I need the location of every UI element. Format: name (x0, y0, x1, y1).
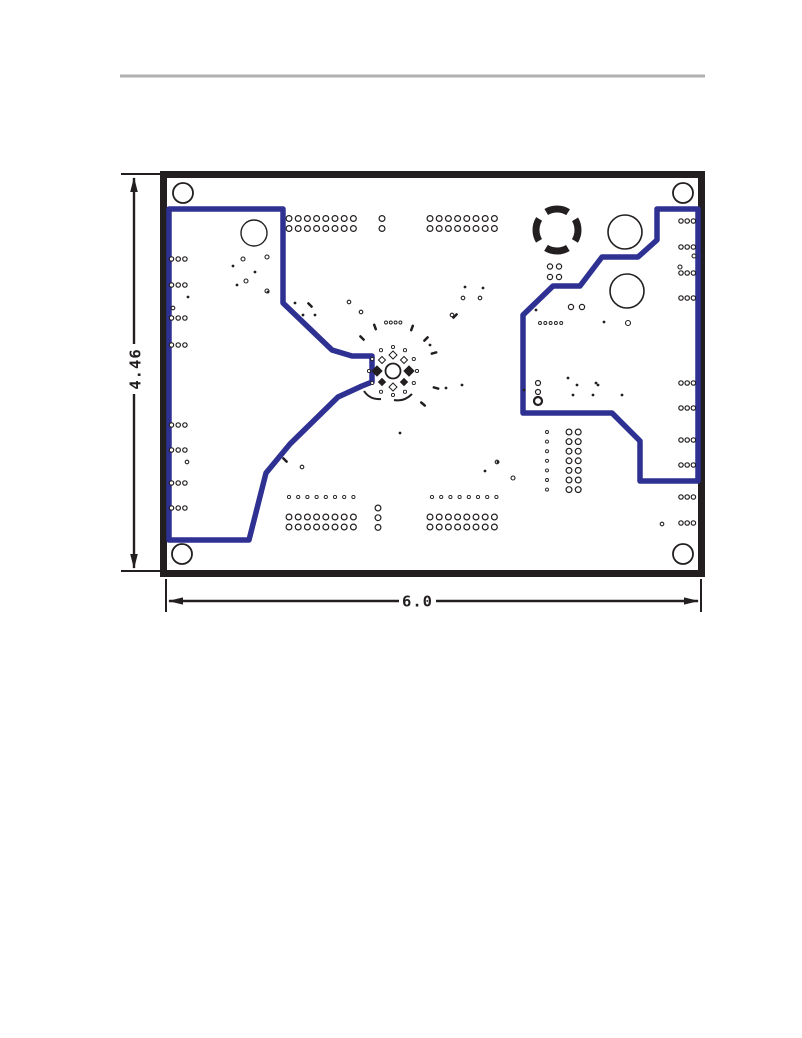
via (169, 343, 173, 347)
via (176, 481, 180, 485)
dot (399, 432, 402, 435)
via (399, 321, 402, 324)
via (461, 296, 465, 300)
via (685, 381, 689, 385)
via (183, 343, 187, 347)
via (436, 226, 442, 232)
via (482, 226, 488, 232)
via (351, 226, 357, 232)
via (685, 406, 689, 410)
via (169, 506, 173, 510)
footprint-pad (371, 381, 374, 384)
via (427, 524, 433, 530)
via (554, 322, 557, 325)
document-page: 4.46 6.0 (0, 0, 802, 1038)
via (473, 216, 479, 222)
via (492, 514, 498, 520)
dot (484, 470, 487, 473)
via (176, 343, 180, 347)
dot (621, 394, 624, 397)
via (287, 495, 290, 498)
via (375, 505, 381, 511)
via (556, 274, 561, 279)
via (556, 264, 561, 269)
dot (523, 389, 526, 392)
via (183, 257, 187, 261)
via (379, 226, 385, 232)
via (679, 438, 683, 442)
dot (464, 286, 467, 289)
footprint-center-hole (386, 364, 401, 379)
via (464, 216, 470, 222)
via (430, 495, 433, 498)
height-dimension-label: 4.46 (127, 348, 145, 389)
via (314, 514, 320, 520)
via (315, 495, 318, 498)
footprint-pad (412, 381, 415, 384)
via (566, 439, 572, 445)
via (549, 322, 552, 325)
via (685, 245, 689, 249)
via (478, 296, 482, 300)
via (341, 524, 347, 530)
via (691, 381, 695, 385)
via (183, 316, 187, 320)
via (341, 226, 347, 232)
via (314, 524, 320, 530)
pcb-figure: 4.46 6.0 (0, 0, 802, 1038)
via (685, 296, 689, 300)
via (351, 216, 357, 222)
dot (597, 384, 600, 387)
via (546, 488, 549, 491)
via (169, 316, 173, 320)
footprint-pad (391, 393, 394, 396)
via (305, 524, 311, 530)
via (547, 264, 552, 269)
via (679, 463, 683, 467)
via (566, 487, 572, 493)
via (351, 524, 357, 530)
via (446, 524, 452, 530)
via (265, 255, 269, 259)
dot (267, 291, 270, 294)
via (385, 321, 388, 324)
via (286, 524, 292, 530)
via (295, 514, 301, 520)
via (375, 515, 381, 521)
via (171, 306, 175, 310)
via (286, 514, 292, 520)
via (482, 216, 488, 222)
via (241, 257, 245, 261)
mounting-hole (172, 544, 192, 564)
via (679, 271, 683, 275)
via (660, 522, 664, 526)
via (332, 514, 338, 520)
via (169, 283, 173, 287)
via (678, 265, 682, 269)
via (575, 439, 581, 445)
via (473, 524, 479, 530)
via (492, 524, 498, 530)
via (455, 524, 461, 530)
via (176, 257, 180, 261)
via (560, 322, 563, 325)
via (343, 495, 346, 498)
via (323, 514, 329, 520)
via (333, 495, 336, 498)
dot (497, 461, 500, 464)
via (691, 245, 695, 249)
via (352, 495, 355, 498)
via (536, 381, 541, 386)
via (169, 423, 173, 427)
via (183, 423, 187, 427)
via (323, 216, 329, 222)
via (323, 524, 329, 530)
via (566, 429, 572, 435)
via (679, 245, 683, 249)
via (286, 216, 292, 222)
dot (461, 384, 464, 387)
via (176, 283, 180, 287)
via (691, 296, 695, 300)
via (544, 322, 547, 325)
via (546, 479, 549, 482)
via (482, 524, 488, 530)
via (324, 495, 327, 498)
via (314, 216, 320, 222)
via (440, 495, 443, 498)
via (679, 495, 683, 499)
via (332, 216, 338, 222)
via (495, 495, 498, 498)
via (626, 321, 631, 326)
via (692, 254, 696, 258)
via (575, 458, 581, 464)
via (482, 514, 488, 520)
dot (302, 314, 305, 317)
footprint-pad (415, 369, 418, 372)
via (539, 322, 542, 325)
via (176, 423, 180, 427)
dot (254, 271, 257, 274)
via (575, 468, 581, 474)
board-outline (164, 175, 702, 574)
via (685, 495, 689, 499)
via (351, 514, 357, 520)
via (394, 321, 397, 324)
footprint-pad (412, 357, 415, 360)
via (305, 226, 311, 232)
via (446, 226, 452, 232)
via (685, 521, 689, 525)
via (449, 495, 452, 498)
width-dimension-label: 6.0 (402, 593, 433, 611)
via (169, 481, 173, 485)
via (566, 458, 572, 464)
via (458, 495, 461, 498)
via (679, 296, 683, 300)
via (579, 304, 584, 309)
via (691, 219, 695, 223)
dot (232, 265, 235, 268)
via (314, 226, 320, 232)
via (473, 514, 479, 520)
footprint-pad (391, 345, 394, 348)
via (169, 448, 173, 452)
via (332, 226, 338, 232)
via (566, 448, 572, 454)
via (341, 514, 347, 520)
via (379, 216, 385, 222)
via (183, 481, 187, 485)
via (427, 216, 433, 222)
via (685, 438, 689, 442)
dot (187, 296, 190, 299)
footprint-pad (379, 349, 382, 352)
via (486, 495, 489, 498)
via (492, 226, 498, 232)
via (295, 524, 301, 530)
via (691, 438, 695, 442)
via (464, 226, 470, 232)
dot (294, 302, 297, 305)
via (323, 226, 329, 232)
via (546, 459, 549, 462)
mounting-hole (673, 183, 693, 203)
footprint-pad (379, 390, 382, 393)
via (691, 271, 695, 275)
dot (572, 394, 575, 397)
via (679, 381, 683, 385)
via (685, 271, 689, 275)
via (185, 460, 189, 464)
via (691, 521, 695, 525)
via (427, 514, 433, 520)
via (679, 219, 683, 223)
via (436, 514, 442, 520)
via (568, 304, 573, 309)
dot (445, 387, 448, 390)
via (375, 525, 381, 531)
dot (595, 382, 598, 385)
via (295, 216, 301, 222)
via (464, 514, 470, 520)
footprint-pad (367, 369, 370, 372)
via (546, 440, 549, 443)
via (575, 477, 581, 483)
footprint-pad (403, 390, 406, 393)
via (305, 514, 311, 520)
via (467, 495, 470, 498)
via (547, 274, 552, 279)
via (566, 468, 572, 474)
via (691, 463, 695, 467)
mounting-hole (173, 183, 193, 203)
via (297, 495, 300, 498)
via (575, 487, 581, 493)
dot (482, 287, 485, 290)
via (691, 406, 695, 410)
via (389, 321, 392, 324)
via (546, 450, 549, 453)
via (446, 514, 452, 520)
via (546, 469, 549, 472)
via (427, 226, 433, 232)
via (347, 300, 351, 304)
dot (576, 384, 579, 387)
via (183, 506, 187, 510)
dot (429, 344, 432, 347)
via (575, 448, 581, 454)
dot (592, 394, 595, 397)
via (359, 310, 363, 314)
via (546, 431, 549, 434)
footprint-pad (403, 349, 406, 352)
via (679, 406, 683, 410)
via (492, 216, 498, 222)
via (176, 506, 180, 510)
via (183, 283, 187, 287)
via (176, 448, 180, 452)
via (679, 521, 683, 525)
dot (314, 314, 317, 317)
via (473, 226, 479, 232)
via (306, 495, 309, 498)
mounting-hole (673, 544, 693, 564)
via (183, 448, 187, 452)
via (446, 216, 452, 222)
dot (567, 377, 570, 380)
via (511, 476, 515, 480)
via (305, 216, 311, 222)
via (295, 226, 301, 232)
via (536, 390, 541, 395)
via (566, 477, 572, 483)
via (575, 429, 581, 435)
via (341, 216, 347, 222)
footprint-pad (371, 357, 374, 360)
via (685, 463, 689, 467)
via (455, 514, 461, 520)
via (436, 216, 442, 222)
via (332, 524, 338, 530)
via (691, 495, 695, 499)
via (436, 524, 442, 530)
via (244, 279, 248, 283)
via (300, 465, 304, 469)
via (476, 495, 479, 498)
via (286, 226, 292, 232)
via (176, 316, 180, 320)
dot (603, 321, 606, 324)
dot (535, 309, 538, 312)
via (455, 226, 461, 232)
via (685, 219, 689, 223)
via (169, 257, 173, 261)
via (455, 216, 461, 222)
dot (236, 284, 239, 287)
via (464, 524, 470, 530)
header-rule (120, 75, 705, 78)
